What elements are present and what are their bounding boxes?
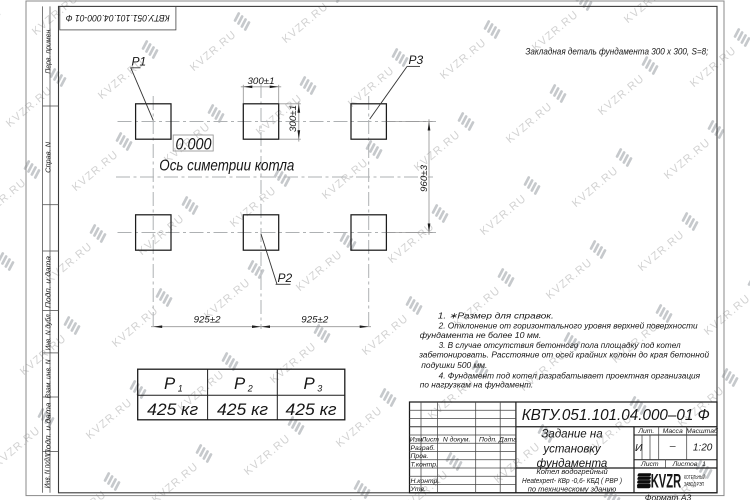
svg-text:забетонировать. Расстояние от: забетонировать. Расстояние от осей крайн… [418, 349, 709, 359]
svg-text:фундамента не более 10 мм.: фундамента не более 10 мм. [420, 330, 542, 340]
svg-text:И: И [635, 442, 643, 454]
svg-text:Лист: Лист [421, 436, 440, 443]
svg-text:ЗАВОД РЭП: ЗАВОД РЭП [684, 482, 704, 488]
svg-text:–: – [669, 440, 676, 452]
svg-text:Формат А3: Формат А3 [645, 493, 692, 500]
svg-text:925±2: 925±2 [301, 315, 329, 325]
svg-text:1:20: 1:20 [693, 443, 713, 454]
svg-text:N докум.: N докум. [443, 435, 471, 443]
svg-text:подушки 500 мм.: подушки 500 мм. [421, 360, 487, 370]
svg-text:Перв. примен.: Перв. примен. [45, 28, 52, 74]
svg-text:Масса: Масса [663, 428, 683, 435]
svg-text:Дата: Дата [498, 436, 517, 443]
svg-text:KVZR: KVZR [651, 470, 682, 492]
svg-text:425 кг: 425 кг [217, 400, 268, 419]
svg-text:Подп. и дата: Подп. и дата [44, 256, 52, 308]
svg-text:Котел водогрейный: Котел водогрейный [536, 467, 608, 476]
svg-text:Масштаб: Масштаб [686, 427, 719, 435]
svg-text:3. В случае отсутствия бетонно: 3. В случае отсутствия бетонного пола пл… [439, 340, 681, 350]
svg-text:Инв. N дубл.: Инв. N дубл. [44, 312, 52, 350]
svg-text:300±1: 300±1 [248, 76, 275, 86]
svg-text:Ось симетрии котла: Ось симетрии котла [159, 157, 294, 174]
svg-text:Закладная деталь фундамента 3: Закладная деталь фундамента 300 х 300, S… [525, 46, 708, 57]
svg-text:Подп.: Подп. [479, 435, 497, 443]
svg-text:Задание на: Задание на [541, 429, 602, 441]
svg-text:Подп. и дата: Подп. и дата [44, 402, 52, 455]
svg-text:Р1: Р1 [132, 55, 147, 69]
svg-text:Р2: Р2 [278, 271, 293, 285]
svg-text:Утв.: Утв. [410, 486, 427, 493]
svg-text:Р3: Р3 [409, 53, 424, 67]
svg-text:Взам. инв. N: Взам. инв. N [45, 359, 52, 399]
svg-text:Пров.: Пров. [411, 453, 429, 460]
svg-text:Лист: Лист [640, 461, 659, 468]
svg-text:КВТУ.051.101.04.000–01 Ф: КВТУ.051.101.04.000–01 Ф [522, 407, 710, 424]
svg-text:по нагрузкам на фундамент.: по нагрузкам на фундамент. [420, 379, 533, 389]
svg-text:Листов: Листов [672, 461, 698, 468]
svg-text:1: 1 [702, 461, 706, 468]
svg-text:2. Отклонение от горизонтально: 2. Отклонение от горизонтального уровня … [438, 320, 698, 330]
svg-text:0.000: 0.000 [176, 134, 212, 153]
svg-text:Лит.: Лит. [637, 428, 654, 435]
svg-text:по техническому зданию: по техническому зданию [528, 484, 617, 493]
svg-text:Справ. N: Справ. N [45, 141, 52, 173]
svg-text:425 кг: 425 кг [286, 400, 337, 419]
svg-text:925±2: 925±2 [194, 315, 222, 325]
svg-text:КВТУ.051.101.04.000-01 Ф: КВТУ.051.101.04.000-01 Ф [65, 12, 169, 23]
svg-text:425 кг: 425 кг [147, 400, 198, 419]
svg-text:Н.контр.: Н.контр. [411, 478, 440, 485]
svg-text:Разраб.: Разраб. [411, 444, 436, 452]
svg-text:Инв. N подл.: Инв. N подл. [44, 453, 52, 488]
svg-text:КОТЕЛЬНЫЙ: КОТЕЛЬНЫЙ [684, 473, 706, 481]
svg-text:Т.контр.: Т.контр. [411, 461, 439, 468]
svg-text:установку: установку [542, 443, 602, 455]
svg-text:1. ∗Размер для справок.: 1. ∗Размер для справок. [438, 311, 554, 321]
svg-text:300±1: 300±1 [288, 105, 298, 132]
svg-text:960±3: 960±3 [419, 164, 429, 192]
